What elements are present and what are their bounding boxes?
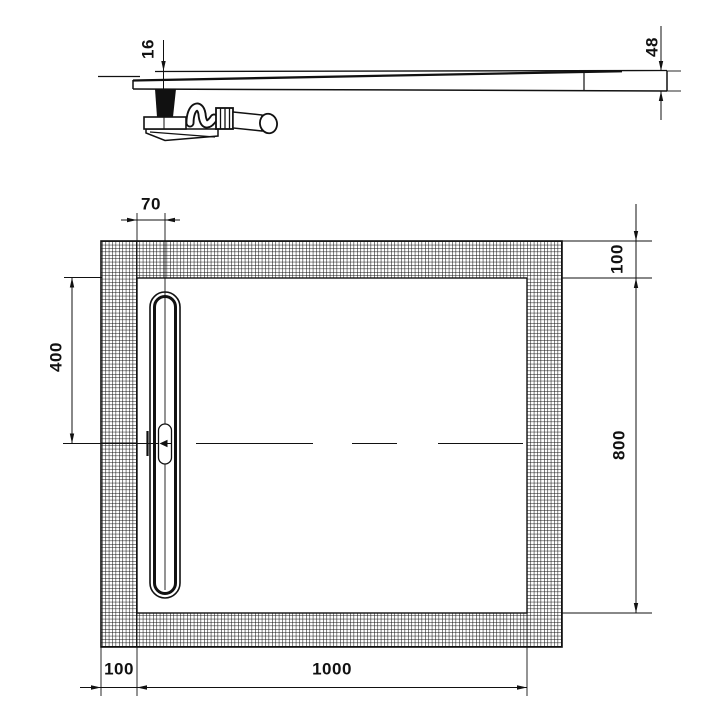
drain-trap [144,89,279,141]
dim100tr-arrow-down [634,231,638,241]
dim-label-70: 70 [141,196,161,213]
dim70-arrow-left [165,218,175,222]
dim-label-16: 16 [140,39,157,59]
trap-outlet-pipe [233,112,262,131]
dim16-arrow-down [161,61,165,71]
dim800-arrow-up [634,278,638,288]
dim800-arrow-down [634,603,638,613]
side-view-dimensions [161,26,681,120]
dim100bl-arrow-right [91,685,101,689]
dim-label-800: 800 [611,430,628,460]
dim48-arrow-down [659,61,663,71]
plan-view [63,213,562,647]
dim-label-100-bottom-left: 100 [104,661,134,678]
side-sloped-floor-line [133,71,622,80]
drawing-linework [0,0,726,726]
trap-tailpiece [155,89,176,117]
dim70-arrow-right [127,218,137,222]
dim-label-100-top-right: 100 [609,244,626,274]
technical-drawing-canvas: 16 48 70 100 800 400 100 1000 [0,0,726,726]
dim1000-arrow-right [517,685,527,689]
dim-label-48: 48 [644,37,661,57]
side-bottom-line [133,89,667,91]
dim400-arrow-up [70,278,74,288]
trap-flange [144,117,186,129]
dim48-arrow-up [659,91,663,101]
dim-label-400: 400 [48,342,65,372]
dim-label-1000: 1000 [312,661,352,678]
tray-inner-floor [137,278,527,613]
dim400-arrow-down [70,434,74,444]
dim1000-arrow-left [137,685,147,689]
side-view [98,71,667,92]
